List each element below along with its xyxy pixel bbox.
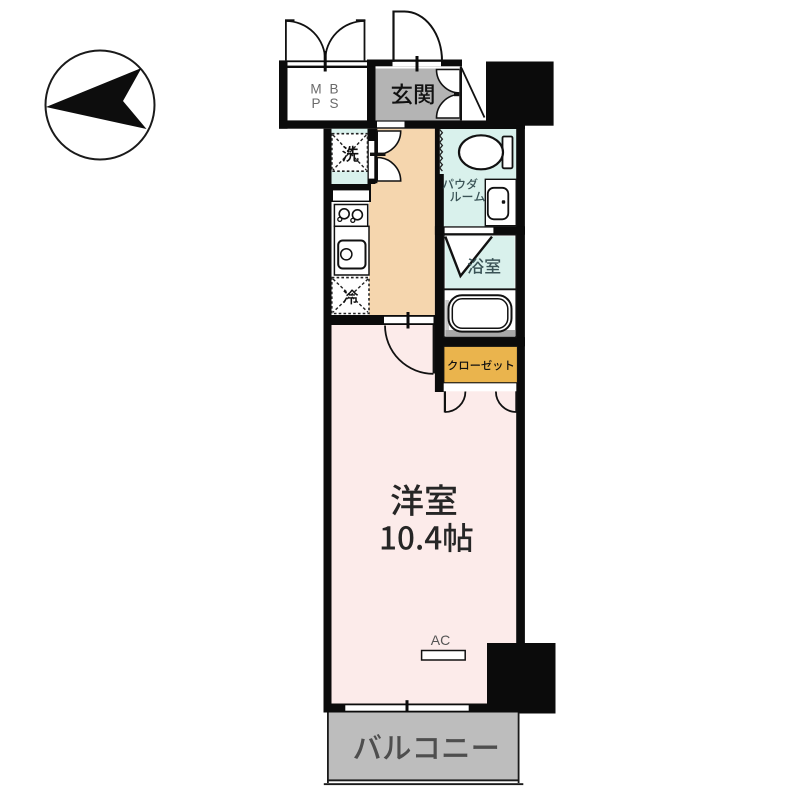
svg-text:B: B bbox=[329, 82, 338, 97]
svg-text:AC: AC bbox=[431, 632, 450, 648]
svg-text:S: S bbox=[329, 96, 338, 111]
svg-text:M: M bbox=[310, 82, 321, 97]
svg-text:P: P bbox=[311, 96, 320, 111]
